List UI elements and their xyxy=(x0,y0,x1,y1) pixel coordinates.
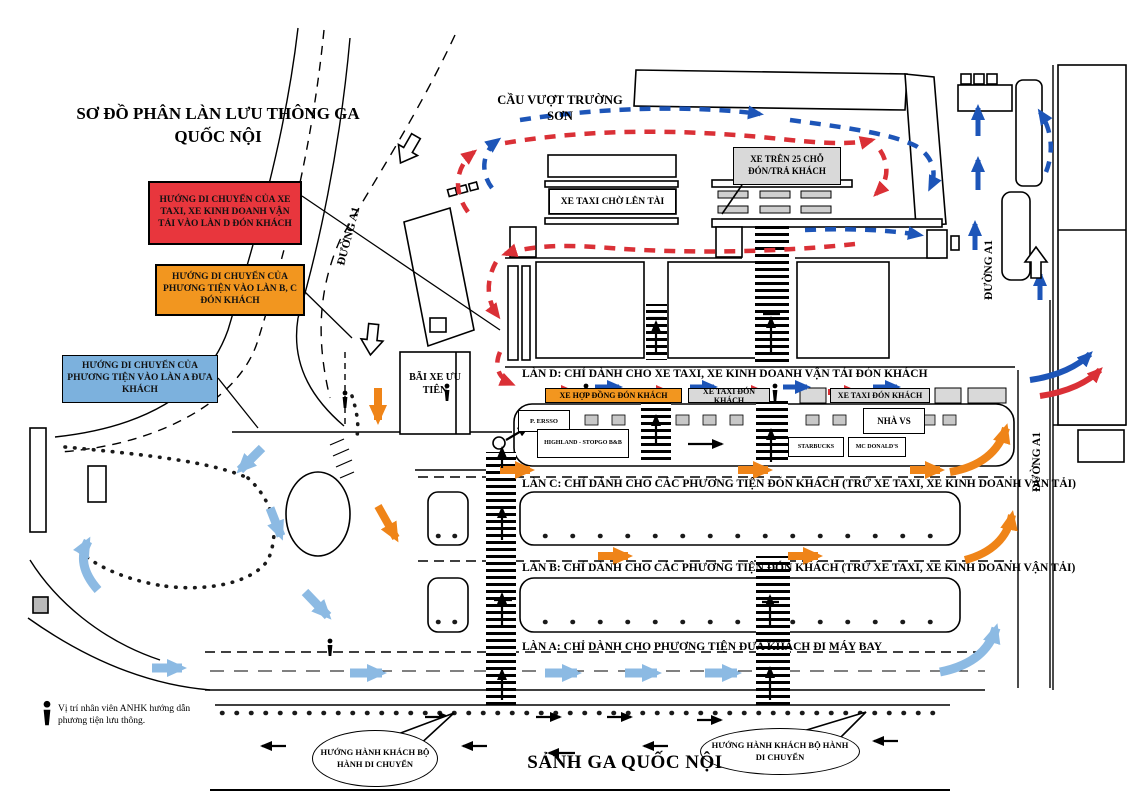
flyover-label: CẦU VƯỢT TRƯỜNG SƠN xyxy=(492,92,628,125)
legend-blue-box: HƯỚNG DI CHUYỂN CỦA PHƯƠNG TIỆN VÀO LÀN … xyxy=(62,355,218,403)
lane-a-label: LÀN A: CHỈ DÀNH CHO PHƯƠNG TIỆN ĐƯA KHÁC… xyxy=(522,641,882,653)
traffic-lane-diagram: ĐƯỜNG A1 ĐƯỜNG A1 ĐƯỜNG A1 SƠ ĐỒ PHÂN LÀ… xyxy=(0,0,1130,794)
legend-orange-box: HƯỚNG DI CHUYỂN CỦA PHƯƠNG TIỆN VÀO LÀN … xyxy=(155,264,305,316)
terminal-hall-label: SẢNH GA QUỐC NỘI xyxy=(520,752,730,774)
taxi-pickup-label-2: XE TAXI ĐÓN KHÁCH xyxy=(830,388,930,403)
contract-car-pickup-label: XE HỢP ĐỒNG ĐÓN KHÁCH xyxy=(545,388,682,403)
buildings xyxy=(30,65,1126,632)
taxi-queue-label: XE TAXI CHỜ LÊN TÀI xyxy=(549,189,676,214)
restroom-label: NHÀ VS xyxy=(863,408,925,434)
lane-d-label: LÀN D: CHỈ DÀNH CHO XE TAXI, XE KINH DOA… xyxy=(522,368,928,380)
lane-b-label: LÀN B: CHỈ DÀNH CHO CÁC PHƯƠNG TIỆN ĐÓN … xyxy=(522,562,1075,574)
duong-a1-left-label: ĐƯỜNG A1 xyxy=(333,205,362,267)
taxi-pickup-label-1: XE TAXI ĐÓN KHÁCH xyxy=(688,388,770,403)
anhk-staff-note: Vị trí nhân viên ANHK hướng dẫn phương t… xyxy=(58,704,216,728)
bus-25-seat-label: XE TRÊN 25 CHỖ ĐÓN/TRẢ KHÁCH xyxy=(733,147,841,185)
lane-c-label: LÀN C: CHỈ DÀNH CHO CÁC PHƯƠNG TIỆN ĐÓN … xyxy=(522,478,1076,490)
pedestrian-direction-bubble-left: HƯỚNG HÀNH KHÁCH BỘ HÀNH DI CHUYỂN xyxy=(312,730,438,787)
shop-highland-label: HIGHLAND - STOPGO B&B xyxy=(537,429,629,458)
duong-a1-topright-label: ĐƯỜNG A1 xyxy=(981,240,995,300)
shop-starbucks-label: STARBUCKS xyxy=(788,437,844,457)
legend-red-box: HƯỚNG DI CHUYỂN CỦA XE TAXI, XE KINH DOA… xyxy=(148,181,302,245)
page-title: SƠ ĐỒ PHÂN LÀN LƯU THÔNG GA QUỐC NỘI xyxy=(68,103,368,149)
shop-mcdonalds-label: MC DONALD'S xyxy=(848,437,906,457)
priority-lot-label: BÃI XE ƯU TIÊN xyxy=(404,372,466,397)
